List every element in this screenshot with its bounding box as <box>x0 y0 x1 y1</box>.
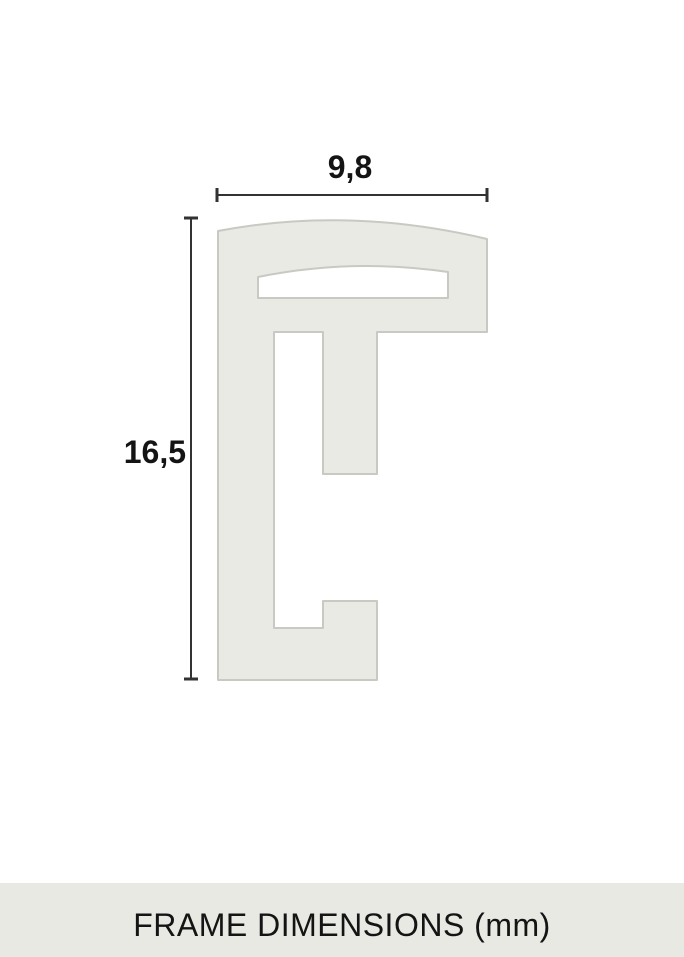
frame-dimensions-page: 9,8 16,5 FRAME DIMENSIONS (mm) <box>0 0 684 957</box>
height-dimension-line <box>184 218 198 679</box>
frame-profile-diagram <box>0 0 684 957</box>
height-dimension-label: 16,5 <box>96 435 186 469</box>
frame-profile-shape <box>218 220 487 680</box>
width-dimension-label: 9,8 <box>300 150 400 184</box>
width-dimension-line <box>217 188 487 202</box>
caption-bar: FRAME DIMENSIONS (mm) <box>0 883 684 957</box>
caption-text: FRAME DIMENSIONS (mm) <box>133 909 551 941</box>
